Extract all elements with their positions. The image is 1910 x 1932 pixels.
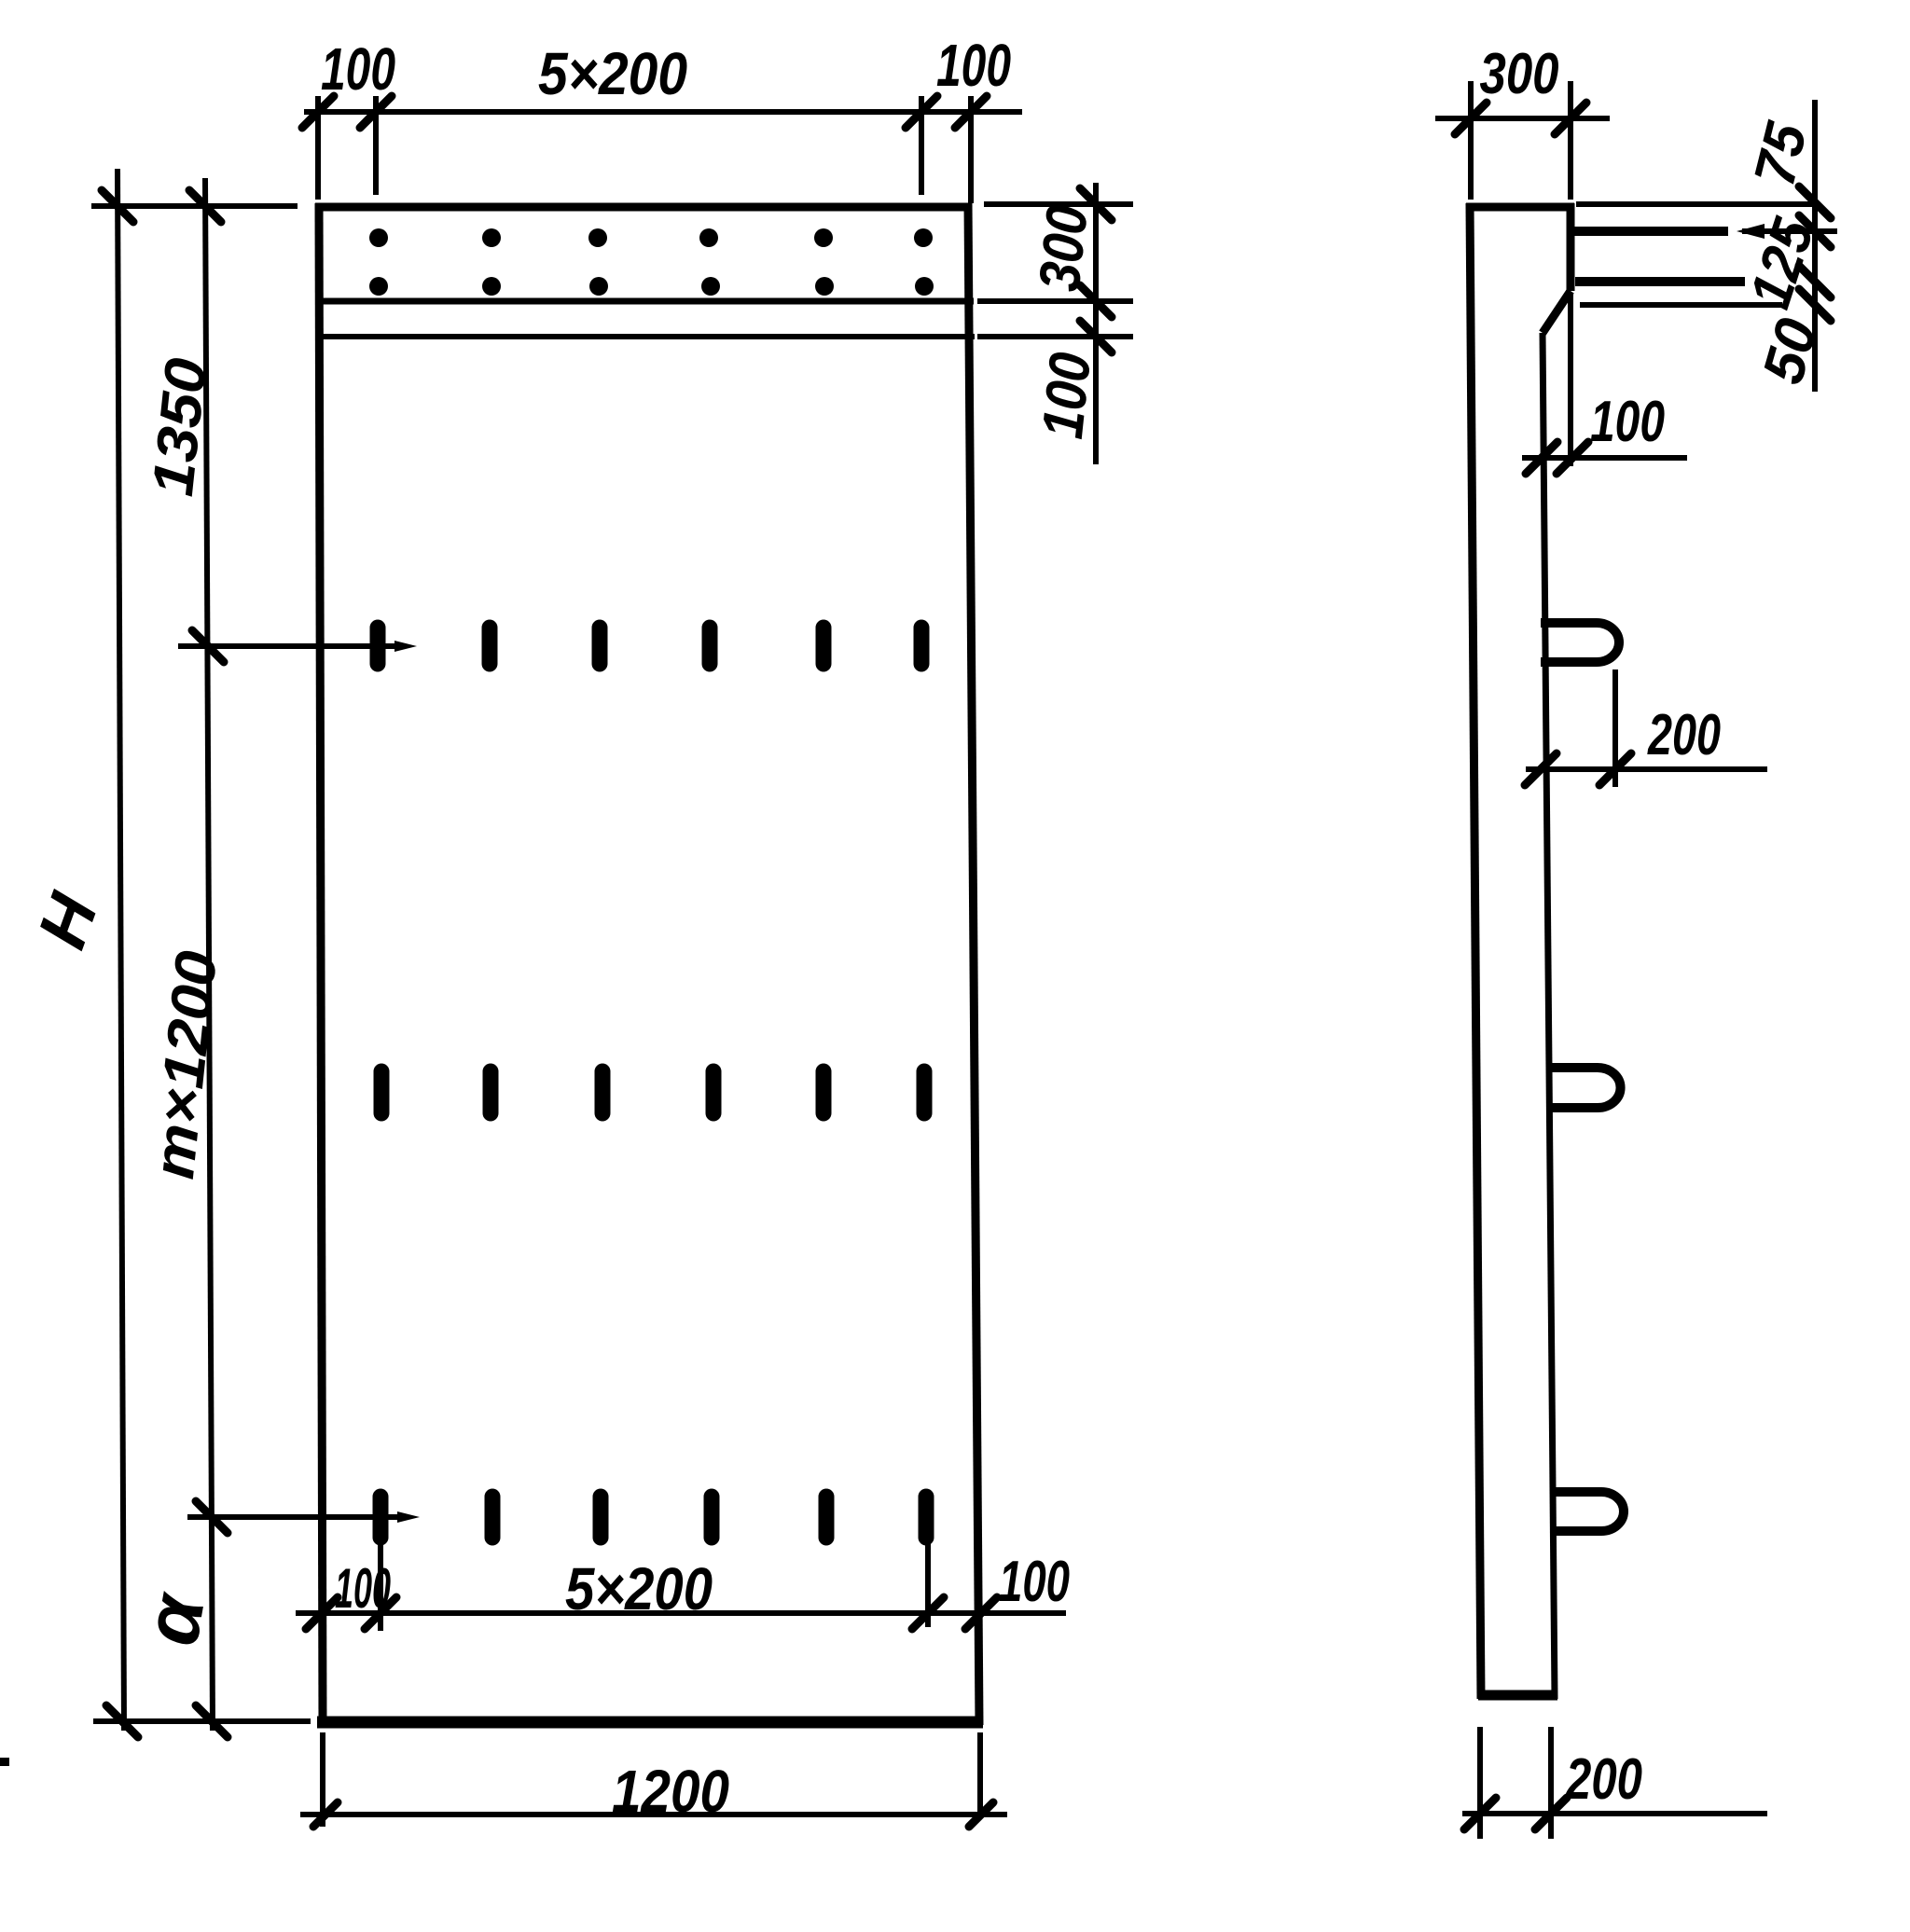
svg-text:200: 200 bbox=[1647, 703, 1721, 767]
svg-text:300: 300 bbox=[1480, 42, 1559, 106]
svg-text:100: 100 bbox=[999, 1550, 1070, 1614]
svg-text:1200: 1200 bbox=[612, 1758, 729, 1825]
svg-text:100: 100 bbox=[1590, 390, 1665, 454]
svg-text:300: 300 bbox=[1028, 202, 1100, 295]
svg-text:100: 100 bbox=[335, 1557, 391, 1620]
svg-text:5×200: 5×200 bbox=[538, 40, 687, 107]
svg-text:100: 100 bbox=[1031, 350, 1103, 442]
svg-text:100: 100 bbox=[321, 35, 395, 103]
svg-text:5×200: 5×200 bbox=[565, 1555, 713, 1622]
svg-text:100: 100 bbox=[936, 32, 1011, 99]
svg-text:200: 200 bbox=[1565, 1747, 1642, 1812]
